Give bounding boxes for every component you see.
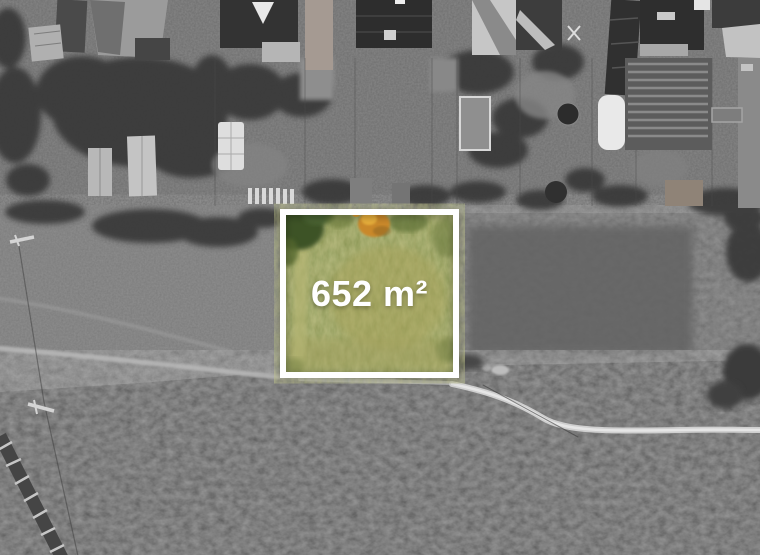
aerial-photo-background xyxy=(0,0,760,555)
highlighted-plot-graphic xyxy=(272,205,460,375)
aerial-photo: 652 m² xyxy=(0,0,760,555)
